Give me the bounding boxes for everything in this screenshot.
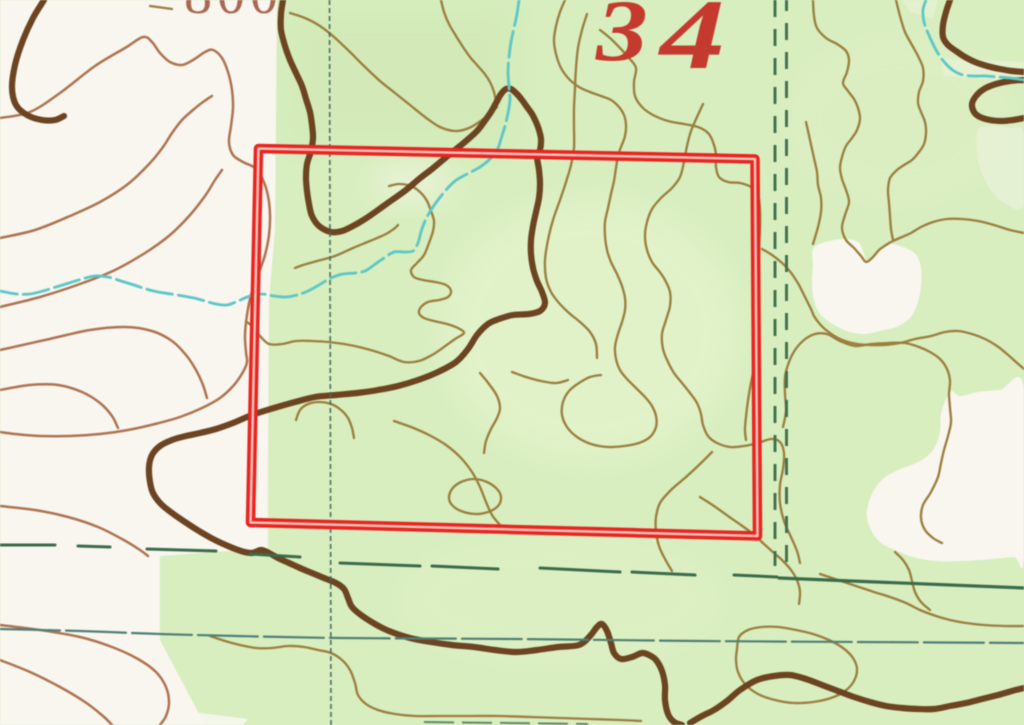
svg-text:800: 800 [184, 0, 283, 26]
svg-text:3: 3 [595, 0, 648, 79]
svg-text:4: 4 [658, 0, 725, 90]
